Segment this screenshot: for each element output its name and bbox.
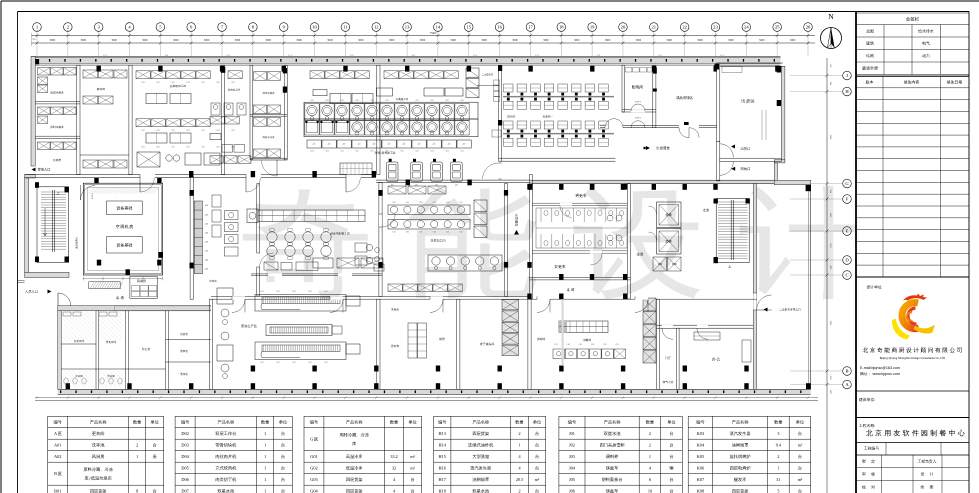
- svg-text:C03: C03: [445, 151, 448, 153]
- svg-text:2: 2: [649, 442, 651, 447]
- svg-text:C03: C03: [433, 202, 436, 204]
- svg-text:3000: 3000: [327, 39, 333, 42]
- svg-text:403: 403: [433, 144, 436, 146]
- svg-text:C03: C03: [579, 344, 582, 346]
- svg-text:5: 5: [777, 488, 779, 493]
- svg-text:Beijing Qineng ShangChu Design: Beijing Qineng ShangChu Design Consultan…: [880, 356, 946, 360]
- svg-text:J03: J03: [569, 454, 575, 459]
- svg-text:10: 10: [312, 24, 317, 29]
- svg-text:3000: 3000: [636, 39, 642, 42]
- svg-text:25: 25: [775, 24, 780, 29]
- svg-text:1: 1: [518, 442, 520, 447]
- svg-text:C03: C03: [156, 130, 159, 132]
- svg-text:C03: C03: [310, 151, 313, 153]
- svg-text:C03: C03: [419, 232, 422, 234]
- svg-text:3000: 3000: [173, 39, 179, 42]
- svg-text:C03: C03: [419, 202, 422, 204]
- svg-text:H15: H15: [439, 454, 446, 459]
- svg-text:H13: H13: [439, 431, 446, 436]
- svg-text:J: J: [846, 73, 848, 78]
- svg-text:2: 2: [136, 442, 138, 447]
- svg-text:400: 400: [205, 251, 208, 253]
- svg-text:C03: C03: [171, 147, 174, 149]
- svg-text:K04: K04: [697, 442, 705, 447]
- svg-text:C03: C03: [355, 100, 358, 102]
- svg-text:C03: C03: [385, 100, 388, 102]
- svg-text:D02: D02: [181, 431, 188, 436]
- svg-text:3000: 3000: [204, 39, 210, 42]
- svg-text:C03: C03: [276, 362, 279, 364]
- svg-text:15: 15: [466, 24, 471, 29]
- svg-text:6: 6: [649, 477, 651, 482]
- svg-text:C03: C03: [186, 147, 189, 149]
- svg-text:3000: 3000: [142, 39, 148, 42]
- svg-text:3000: 3000: [728, 39, 734, 42]
- svg-text:C03: C03: [459, 202, 462, 204]
- svg-text:1: 1: [264, 465, 266, 470]
- svg-text:C03: C03: [554, 344, 557, 346]
- svg-text:16: 16: [497, 24, 502, 29]
- svg-text:3000: 3000: [481, 39, 487, 42]
- svg-text:18: 18: [559, 24, 564, 29]
- svg-text:C03: C03: [459, 232, 462, 234]
- svg-text:A02: A02: [54, 454, 61, 459]
- svg-text:C03: C03: [141, 147, 144, 149]
- svg-text:14: 14: [436, 24, 441, 29]
- svg-text:C03: C03: [392, 202, 395, 204]
- svg-text:C03: C03: [615, 344, 618, 346]
- svg-text:B: B: [845, 368, 848, 373]
- svg-text:26: 26: [806, 24, 811, 29]
- svg-text:403: 403: [313, 144, 316, 146]
- svg-text:400: 400: [205, 205, 208, 207]
- svg-text:D05: D05: [181, 465, 188, 470]
- svg-text:3000: 3000: [667, 39, 673, 42]
- svg-text:1: 1: [649, 454, 651, 459]
- svg-text:C03: C03: [231, 130, 234, 132]
- svg-text:J06: J06: [569, 488, 576, 493]
- svg-text:13: 13: [405, 24, 410, 29]
- svg-text:A01: A01: [54, 442, 61, 447]
- svg-text:C03: C03: [445, 100, 448, 102]
- svg-text:3000: 3000: [512, 39, 518, 42]
- svg-text:C03: C03: [415, 100, 418, 102]
- svg-text:C03: C03: [216, 82, 219, 84]
- svg-text:C03: C03: [430, 151, 433, 153]
- svg-text:403: 403: [455, 185, 458, 187]
- svg-text:3000: 3000: [358, 39, 364, 42]
- svg-text:400: 400: [205, 260, 208, 262]
- svg-text:C03: C03: [370, 151, 373, 153]
- svg-text:3000: 3000: [235, 39, 241, 42]
- svg-text:C03: C03: [325, 100, 328, 102]
- svg-text:3000: 3000: [574, 39, 580, 42]
- svg-text:9.4: 9.4: [776, 442, 782, 447]
- svg-text:C03: C03: [400, 100, 403, 102]
- svg-text:1: 1: [777, 465, 779, 470]
- svg-text:C03: C03: [231, 82, 234, 84]
- svg-text:C03: C03: [567, 344, 570, 346]
- svg-text:3000: 3000: [605, 39, 611, 42]
- svg-text:E-mail:bjqnsc@163.com: E-mail:bjqnsc@163.com: [860, 366, 900, 370]
- svg-text:22: 22: [682, 24, 687, 29]
- svg-text:J04: J04: [569, 465, 576, 470]
- svg-text:C03: C03: [430, 100, 433, 102]
- svg-text:C03: C03: [392, 232, 395, 234]
- svg-text:C03: C03: [433, 232, 436, 234]
- svg-text:1: 1: [264, 431, 266, 436]
- svg-text:403: 403: [403, 144, 406, 146]
- svg-text:C03: C03: [446, 202, 449, 204]
- svg-text:C03: C03: [292, 291, 295, 293]
- svg-text:3000: 3000: [81, 39, 87, 42]
- svg-text:C03: C03: [156, 147, 159, 149]
- svg-text:3000: 3000: [420, 39, 426, 42]
- svg-text:D06: D06: [181, 477, 189, 482]
- svg-text:m²: m²: [798, 442, 803, 447]
- svg-text:403: 403: [448, 144, 451, 146]
- svg-text:C03: C03: [355, 151, 358, 153]
- svg-text:32: 32: [392, 465, 396, 470]
- svg-text:20: 20: [621, 24, 626, 29]
- svg-text:Z/W-2: Z/W-2: [92, 193, 94, 199]
- svg-text:403: 403: [463, 144, 466, 146]
- svg-text:H16: H16: [439, 465, 447, 470]
- svg-text:B: B: [54, 471, 57, 476]
- svg-text:C03: C03: [340, 100, 343, 102]
- svg-text:C: C: [845, 272, 848, 277]
- svg-text:C03: C03: [201, 130, 204, 132]
- svg-text:2: 2: [649, 431, 651, 436]
- svg-text:3000: 3000: [50, 39, 56, 42]
- svg-text:C03: C03: [325, 151, 328, 153]
- svg-text:C03: C03: [216, 130, 219, 132]
- svg-text:C03: C03: [171, 130, 174, 132]
- svg-text:G01: G01: [310, 454, 317, 459]
- svg-text:K08: K08: [697, 488, 704, 493]
- svg-text:Z/W-1: Z/W-1: [635, 118, 641, 120]
- svg-text:C03: C03: [406, 232, 409, 234]
- svg-text:K07: K07: [697, 477, 705, 482]
- svg-text:J01: J01: [569, 431, 575, 436]
- svg-text:F: F: [846, 196, 849, 201]
- svg-text:K05: K05: [697, 454, 704, 459]
- svg-text:23: 23: [713, 24, 718, 29]
- svg-text:403: 403: [418, 144, 421, 146]
- svg-text:C03: C03: [260, 362, 263, 364]
- svg-text:C03: C03: [340, 151, 343, 153]
- svg-text:3000: 3000: [296, 39, 302, 42]
- svg-text:C03: C03: [260, 291, 263, 293]
- svg-text:H14: H14: [439, 442, 447, 447]
- svg-text:3: 3: [777, 431, 779, 436]
- svg-text:D04: D04: [181, 454, 189, 459]
- svg-text:403: 403: [415, 185, 418, 187]
- svg-text:400: 400: [205, 269, 208, 271]
- svg-text:K06: K06: [697, 465, 705, 470]
- svg-text:20.5: 20.5: [516, 477, 523, 482]
- svg-text:C03: C03: [460, 100, 463, 102]
- svg-text:G02: G02: [310, 465, 317, 470]
- svg-text:403: 403: [373, 144, 376, 146]
- svg-text:C03: C03: [324, 291, 327, 293]
- svg-text:m²: m²: [535, 477, 540, 482]
- svg-text:2: 2: [518, 488, 520, 493]
- svg-text:400: 400: [205, 232, 208, 234]
- svg-text:403: 403: [343, 144, 346, 146]
- svg-text:C03: C03: [141, 82, 144, 84]
- svg-text:3000: 3000: [266, 39, 272, 42]
- svg-text:3000: 3000: [790, 39, 796, 42]
- svg-text:C03: C03: [460, 151, 463, 153]
- svg-text:H18: H18: [439, 488, 446, 493]
- svg-text:3000: 3000: [451, 39, 457, 42]
- svg-text:C03: C03: [415, 151, 418, 153]
- svg-text:11: 11: [343, 24, 348, 29]
- svg-text:403: 403: [358, 144, 361, 146]
- svg-text:C03: C03: [446, 232, 449, 234]
- svg-text:D03: D03: [181, 442, 188, 447]
- svg-text:C03: C03: [156, 82, 159, 84]
- svg-text:1: 1: [136, 454, 138, 459]
- svg-text:31: 31: [776, 477, 780, 482]
- svg-text:3000: 3000: [697, 39, 703, 42]
- svg-text:403: 403: [391, 185, 394, 187]
- svg-text:C03: C03: [141, 130, 144, 132]
- svg-text:3000: 3000: [389, 39, 395, 42]
- svg-text:m²: m²: [410, 454, 415, 459]
- svg-text:75000: 75000: [430, 32, 437, 35]
- svg-text:C03: C03: [186, 82, 189, 84]
- svg-text:1: 1: [264, 442, 266, 447]
- svg-text:C03: C03: [310, 100, 313, 102]
- svg-text:C03: C03: [603, 344, 606, 346]
- svg-text:400: 400: [205, 214, 208, 216]
- svg-text:D07: D07: [181, 488, 189, 493]
- svg-text:J05: J05: [569, 477, 575, 482]
- svg-text:1: 1: [264, 477, 266, 482]
- svg-text:403: 403: [435, 185, 438, 187]
- svg-text:1: 1: [264, 454, 266, 459]
- svg-text:8: 8: [136, 488, 138, 493]
- svg-text:B01: B01: [54, 488, 61, 493]
- svg-text:21: 21: [652, 24, 657, 29]
- svg-text:N: N: [828, 12, 834, 21]
- svg-text:24: 24: [744, 24, 749, 29]
- svg-text:17: 17: [528, 24, 533, 29]
- svg-text:Z/W-1: Z/W-1: [635, 101, 641, 103]
- svg-text:C03: C03: [186, 130, 189, 132]
- svg-text:1: 1: [264, 488, 266, 493]
- svg-text:3000: 3000: [759, 39, 765, 42]
- svg-text:3000: 3000: [111, 39, 117, 42]
- svg-text:33.2: 33.2: [390, 454, 397, 459]
- svg-text:www.bjqnsc.com: www.bjqnsc.com: [873, 372, 900, 376]
- svg-text:C03: C03: [308, 362, 311, 364]
- svg-text:400: 400: [205, 223, 208, 225]
- svg-text:H17: H17: [439, 477, 447, 482]
- svg-text:10: 10: [648, 488, 652, 493]
- svg-text:C03: C03: [324, 362, 327, 364]
- svg-text:m²: m²: [410, 465, 415, 470]
- svg-text:C03: C03: [201, 147, 204, 149]
- svg-text:C03: C03: [370, 100, 373, 102]
- svg-text:3000: 3000: [543, 39, 549, 42]
- svg-text:12: 12: [374, 24, 379, 29]
- svg-text:19: 19: [590, 24, 595, 29]
- svg-text:2: 2: [518, 431, 520, 436]
- svg-text:C03: C03: [400, 151, 403, 153]
- svg-text:C03: C03: [171, 82, 174, 84]
- svg-text:403: 403: [388, 144, 391, 146]
- svg-text:J02: J02: [569, 442, 575, 447]
- svg-text:C03: C03: [591, 344, 594, 346]
- svg-text:C03: C03: [201, 82, 204, 84]
- svg-text:m²: m²: [798, 477, 803, 482]
- svg-text:C03: C03: [216, 147, 219, 149]
- svg-text:E: E: [846, 228, 849, 233]
- svg-text:C03: C03: [292, 362, 295, 364]
- svg-text:G: G: [310, 437, 313, 442]
- svg-text:G04: G04: [310, 488, 318, 493]
- svg-text:C03: C03: [308, 291, 311, 293]
- svg-text:400: 400: [205, 241, 208, 243]
- svg-text:G03: G03: [310, 477, 317, 482]
- svg-text:C03: C03: [276, 291, 279, 293]
- svg-text:C03: C03: [406, 202, 409, 204]
- svg-text:2: 2: [777, 454, 779, 459]
- svg-text:K03: K03: [697, 431, 704, 436]
- svg-text:403: 403: [328, 144, 331, 146]
